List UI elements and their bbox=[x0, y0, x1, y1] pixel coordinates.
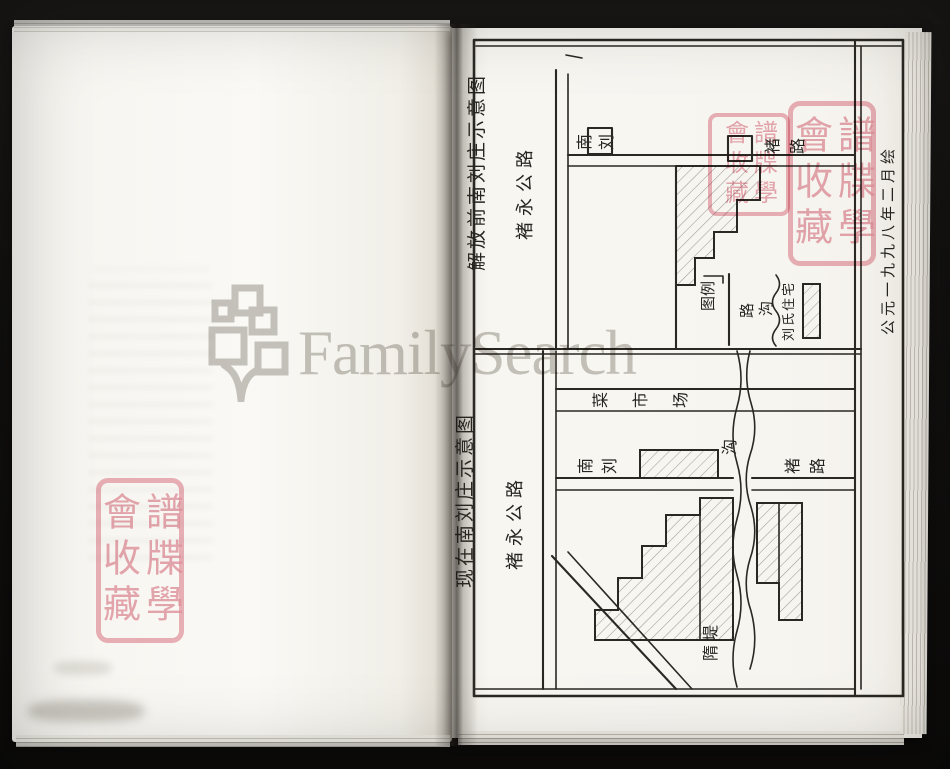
fore-edge-pages-right bbox=[901, 32, 932, 734]
page-stack-edge-top bbox=[14, 20, 450, 32]
page-stack-edge-bottom-right bbox=[458, 731, 904, 745]
collection-seal-left-page: 譜牒學 會收藏 bbox=[96, 478, 184, 643]
seal-right-column: 譜牒學 bbox=[143, 492, 181, 630]
illegible-text-smudge bbox=[28, 700, 144, 722]
seal-left-column: 會收藏 bbox=[100, 492, 138, 630]
seal-left-column: 會收藏 bbox=[792, 115, 830, 253]
page-stack-edge-bottom-left bbox=[16, 735, 450, 747]
seal-left-column: 會收藏 bbox=[723, 120, 747, 210]
illegible-text-smudge-small bbox=[54, 661, 112, 675]
familysearch-tree-icon bbox=[208, 280, 294, 402]
book-gutter-shadow bbox=[434, 24, 478, 746]
scanned-genealogy-book-photo: 解放前南刘庄示意图 褚永公路 南刘 褚路 图例 路 沟 bbox=[0, 0, 950, 769]
seal-right-column: 譜牒學 bbox=[752, 120, 776, 210]
seal-right-column: 譜牒學 bbox=[835, 115, 873, 253]
collection-seal-page-corner: 譜牒學 會收藏 bbox=[788, 101, 876, 266]
collection-seal-on-map: 譜牒學 會收藏 bbox=[708, 113, 790, 216]
